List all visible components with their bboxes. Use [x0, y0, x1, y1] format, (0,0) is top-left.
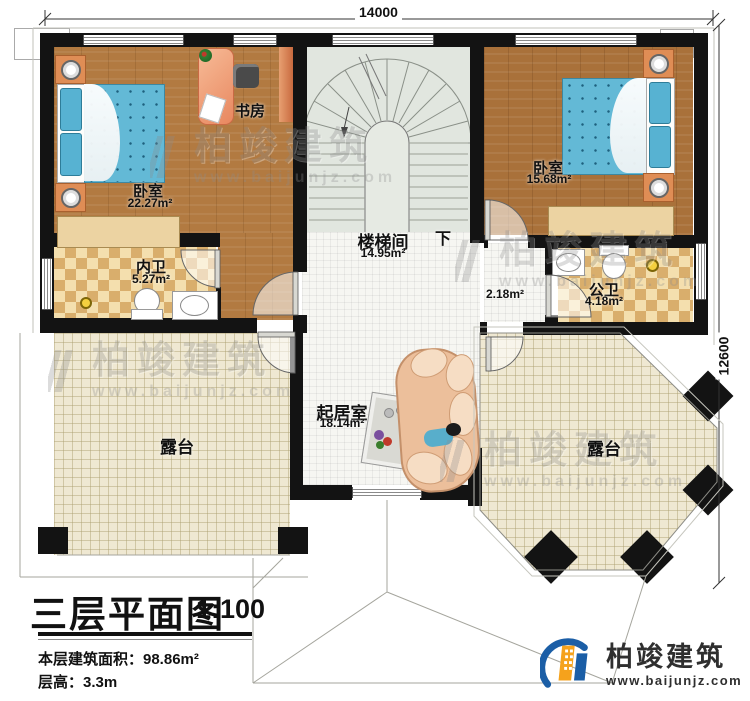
- floor-plan: 柏竣建筑 www.baijunjz.com 柏竣建筑 www.baijunjz.…: [0, 0, 750, 701]
- stairs-down-label: 下: [435, 225, 451, 249]
- door-leaf: [293, 272, 298, 315]
- bath-inner-area: 5.27m²: [132, 272, 170, 286]
- wall-living-left: [290, 333, 303, 500]
- bed-right-pillow-2: [649, 126, 671, 168]
- window-top-bedroom-right: [515, 35, 637, 45]
- wall-hall-vestibule-bottom: [293, 315, 307, 333]
- office-chair-icon: [233, 64, 259, 88]
- floor-height-note: 层高：3.3m: [38, 671, 117, 692]
- bath-public-area: 4.18m²: [585, 294, 623, 308]
- bedroom-right-area: 15.68m²: [527, 172, 572, 186]
- lamp-icon: [649, 54, 669, 74]
- terrace-left-pillar-se: [278, 527, 308, 554]
- terrace-left-label: 露台: [160, 433, 194, 458]
- dimension-height: 12600: [715, 333, 731, 380]
- dimension-width: 14000: [355, 4, 402, 20]
- person-head: [446, 423, 461, 436]
- wall-bathinner-bottom: [40, 318, 257, 333]
- desk-plant-icon: [199, 49, 212, 62]
- title-underline-thin: [38, 639, 252, 640]
- lamp-icon: [61, 60, 81, 80]
- plan-scale: 1:100: [196, 594, 265, 625]
- vestibule-floor: [218, 233, 293, 320]
- stairs-drawing: [307, 47, 470, 232]
- wall-bathpublic-bottom-b: [523, 322, 708, 335]
- wall-bathpublic-bottom-a: [480, 322, 487, 335]
- corridor-floor: [484, 243, 545, 322]
- hallway-area: 2.18m²: [486, 287, 524, 301]
- terrace-left-pillar-sw: [38, 527, 68, 554]
- bed-left-pillow-1: [60, 88, 82, 131]
- study-label: 书房: [235, 100, 265, 121]
- brand-url: www.baijunjz.com: [606, 674, 742, 687]
- window-top-2: [233, 35, 277, 45]
- table-flowers-icon: [376, 441, 384, 449]
- floor-drain-icon: [80, 297, 92, 309]
- lamp-icon: [61, 188, 81, 208]
- wardrobe-left: [57, 216, 180, 248]
- wall-bedroomleft-stair: [293, 33, 307, 232]
- window-living-bottom: [352, 487, 422, 498]
- door-leaf: [546, 275, 551, 317]
- brand-name: 柏竣建筑: [606, 644, 742, 671]
- wall-living-bottom-a: [290, 485, 352, 500]
- floor-area-note: 本层建筑面积：98.86m²: [38, 648, 199, 669]
- brand-logo-icon: [540, 636, 598, 694]
- floor-drain-icon: [646, 259, 659, 272]
- window-top-stairs: [332, 35, 434, 45]
- bed-right-pillow-1: [649, 82, 671, 124]
- stairwell-area: 14.95m²: [361, 246, 406, 260]
- wall-bathpublic-left-stub: [545, 315, 558, 322]
- window-bath-public: [696, 243, 706, 300]
- study-accent-wall: [279, 47, 293, 122]
- sink-basin-icon: [180, 295, 209, 316]
- wardrobe-right: [548, 206, 674, 236]
- lamp-icon: [649, 178, 669, 198]
- sink-basin-icon: [556, 253, 581, 272]
- toilet-icon: [602, 253, 626, 279]
- bedroom-left-area: 22.27m²: [128, 196, 173, 210]
- toilet-tank: [131, 309, 163, 320]
- terrace-right-label: 露台: [587, 435, 621, 460]
- wall-hall-vestibule-top: [293, 232, 307, 272]
- living-room-area: 18.14m²: [320, 416, 365, 430]
- table-flowers-icon: [383, 437, 392, 446]
- wall-stair-bedroomright: [470, 33, 484, 243]
- table-cup-icon: [384, 408, 394, 418]
- bed-left-pillow-2: [60, 133, 82, 176]
- wall-bedroomright-bottom-stub: [484, 235, 488, 248]
- brand-logo: 柏竣建筑 www.baijunjz.com: [540, 636, 742, 694]
- window-top-1: [83, 35, 184, 45]
- window-bath-inner: [42, 258, 52, 310]
- title-underline: [38, 632, 252, 636]
